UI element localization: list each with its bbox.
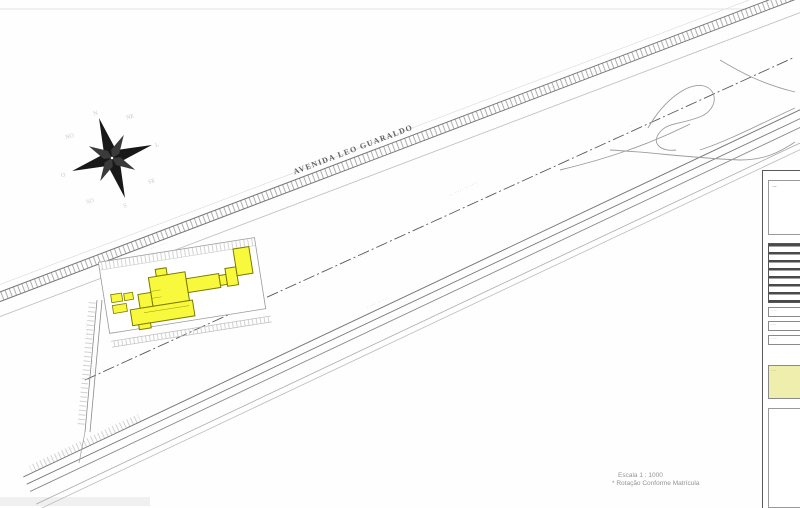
title-block-header-box: ·– bbox=[768, 180, 800, 235]
compass-nw: NO bbox=[65, 133, 76, 142]
compass-rose: N NE L SE S SO O NO bbox=[45, 95, 175, 225]
compass-ne: NE bbox=[126, 113, 136, 121]
title-block-field-3: ····· bbox=[768, 335, 800, 345]
site-plan-drawing: N NE L SE S SO O NO bbox=[0, 0, 800, 508]
compass-w: O bbox=[60, 172, 67, 179]
compass-s: S bbox=[123, 203, 128, 210]
compass-sw: SO bbox=[86, 198, 96, 206]
title-block: ·– ····· ···· ····· ···· bbox=[762, 170, 800, 508]
title-block-lower-box bbox=[768, 408, 800, 508]
scale-text: Escala 1 : 1000 bbox=[618, 472, 699, 480]
title-block-highlight-field: ···· bbox=[768, 365, 800, 399]
compass-e: L bbox=[154, 142, 160, 149]
site-plan-page: N NE L SE S SO O NO AVENIDA LEO GUARALDO… bbox=[0, 0, 800, 508]
title-block-field-2: ···· bbox=[768, 321, 800, 331]
highway-interchange bbox=[560, 60, 795, 170]
title-block-revision-table bbox=[768, 243, 800, 303]
compass-n: N bbox=[93, 110, 100, 117]
rotation-note-text: * Rotação Conforme Matrícula bbox=[612, 480, 699, 488]
bottom-edge-shade bbox=[0, 497, 150, 506]
scale-note-block: Escala 1 : 1000 * Rotação Conforme Matrí… bbox=[612, 472, 699, 488]
title-block-field-1: ····· bbox=[768, 307, 800, 317]
compass-se: SE bbox=[148, 178, 157, 186]
